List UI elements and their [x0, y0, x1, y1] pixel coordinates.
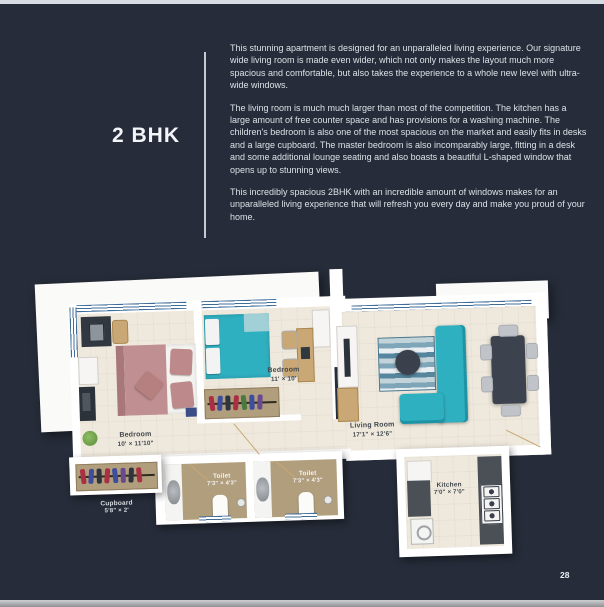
paragraph-2: The living room is much much larger than…	[230, 102, 588, 176]
tv-screen-icon	[344, 339, 351, 377]
floor-plan: Bedroom 10' × 11'10"	[33, 260, 582, 577]
page-title: 2 BHK	[40, 124, 180, 148]
page-top-edge	[0, 0, 604, 4]
sink-icon	[256, 477, 270, 501]
room-label-kitchen: Kitchen 7'0" × 7'0"	[418, 481, 480, 499]
dining-chair	[501, 404, 521, 417]
room-label-cupboard: Cupboard 5'8" × 2'	[81, 499, 153, 517]
room-label-living-room: Living Room 17'1" × 12'6"	[332, 421, 412, 440]
dining-chair	[481, 376, 493, 392]
dining-chair	[526, 343, 538, 359]
tv-screen-icon	[82, 393, 91, 411]
washing-machine-icon	[410, 518, 434, 545]
media-unit	[336, 325, 359, 388]
monitor-icon	[301, 347, 310, 359]
sink-icon	[167, 480, 181, 504]
dining-chair	[527, 375, 539, 391]
paragraph-1: This stunning apartment is designed for …	[230, 42, 588, 92]
cupboard-interior	[75, 462, 158, 492]
desk	[81, 316, 112, 347]
page-number: 28	[560, 570, 584, 580]
title-divider	[204, 52, 206, 238]
console-cabinet	[337, 387, 359, 422]
tv-unit	[79, 387, 96, 421]
toilet2-window	[285, 513, 317, 520]
toilet1-window	[199, 515, 231, 522]
laptop-icon	[89, 323, 105, 341]
bed-pillow	[206, 348, 221, 374]
master-bed	[116, 343, 198, 415]
desk-chair	[112, 320, 129, 344]
bedroom2-wardrobe	[204, 387, 280, 419]
dining-table	[491, 335, 527, 404]
dining-chair	[498, 324, 518, 337]
toilet2-vanity	[253, 461, 272, 518]
brochure-page: 2 BHK This stunning apartment is designe…	[0, 0, 604, 607]
folded-blanket	[244, 313, 270, 332]
kitchen-counter-right	[477, 456, 504, 545]
stove-icon	[480, 484, 503, 525]
room-label-master-bedroom: Bedroom 10' × 11'10"	[95, 430, 175, 449]
bed-pillow	[170, 349, 193, 376]
study-chair	[281, 330, 298, 349]
page-bottom-edge	[0, 600, 604, 607]
dining-chair	[480, 344, 492, 360]
dresser	[78, 357, 99, 386]
washer-door-icon	[416, 525, 431, 540]
bed-pillow	[170, 381, 195, 409]
toilet1-vanity	[164, 464, 183, 521]
sofa-horizontal-section	[399, 393, 444, 424]
room-label-second-bedroom: Bedroom 11' × 10'	[253, 366, 313, 384]
bed-pillow	[205, 319, 220, 345]
nightstand	[186, 407, 197, 416]
shelf-unit	[312, 309, 331, 348]
description-text: This stunning apartment is designed for …	[230, 42, 588, 233]
paragraph-3: This incredibly spacious 2BHK with an in…	[230, 186, 588, 223]
